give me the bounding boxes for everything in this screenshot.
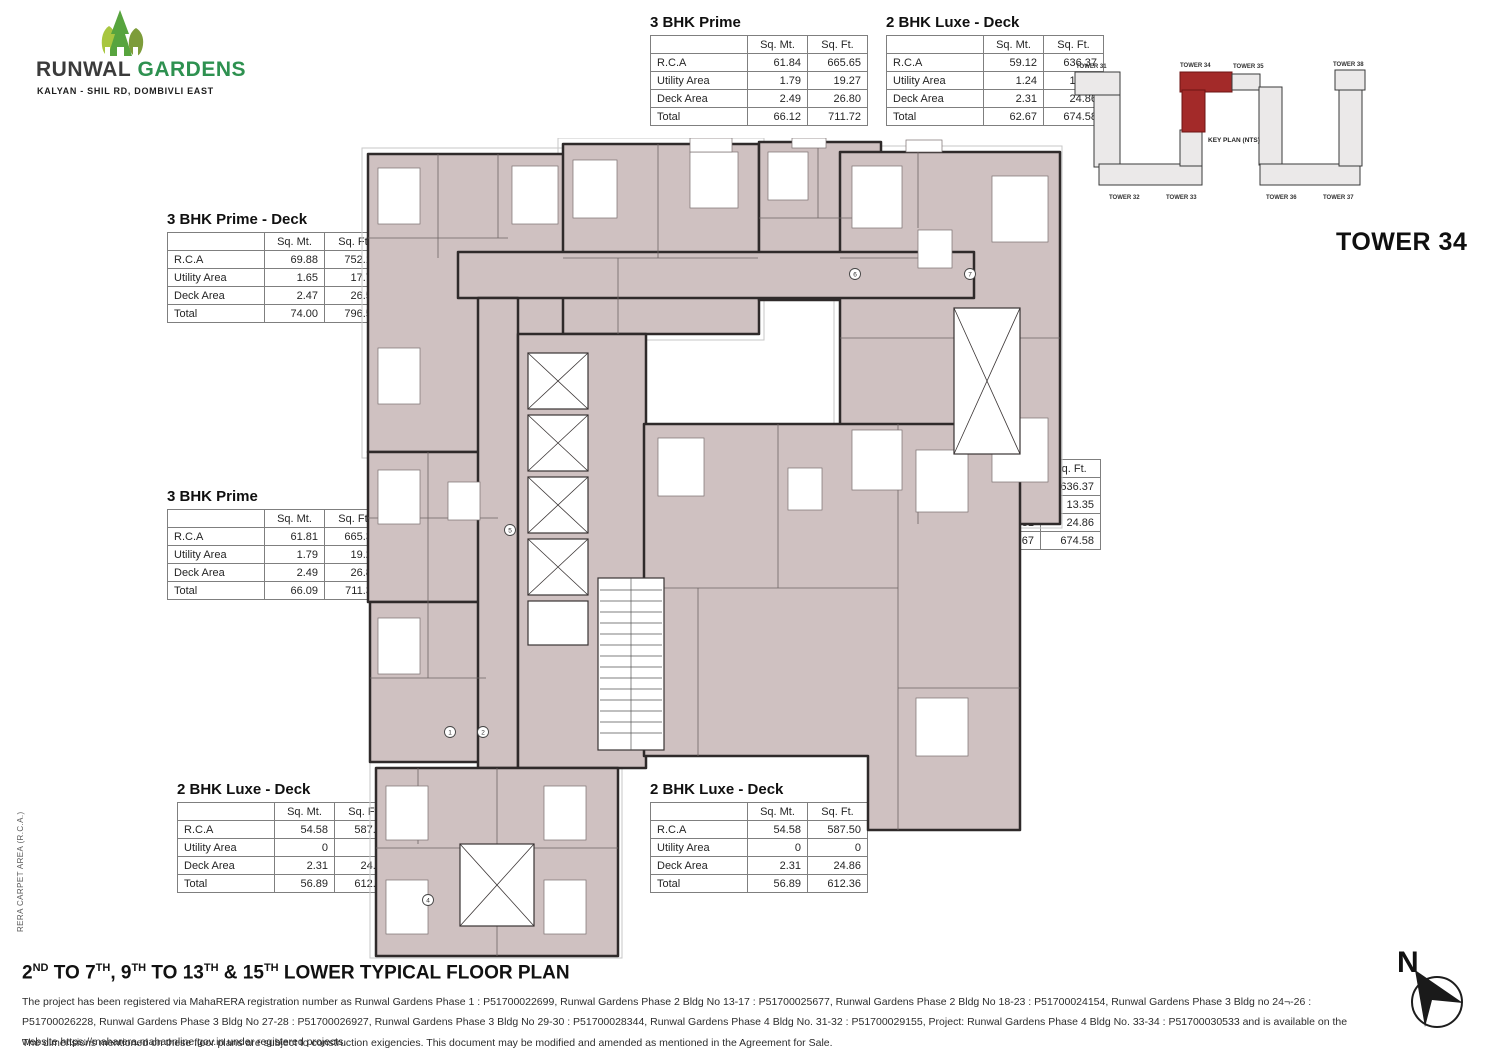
- area-table-title: 3 BHK Prime: [167, 488, 385, 505]
- table-row: R.C.A69.88752.19: [168, 251, 385, 269]
- svg-text:4: 4: [426, 897, 430, 904]
- table-row: Total66.09711.39: [168, 582, 385, 600]
- area-label-cell: Utility Area: [168, 546, 265, 564]
- service-shaft-right: [954, 308, 1020, 454]
- lift-shafts: [528, 353, 588, 645]
- area-value-cell: 69.88: [265, 251, 325, 269]
- area-value-cell: 66.12: [748, 108, 808, 126]
- svg-text:2: 2: [481, 729, 485, 736]
- area-table-title: 3 BHK Prime - Deck: [167, 211, 385, 228]
- brand-tagline: KALYAN - SHIL RD, DOMBIVLI EAST: [37, 86, 214, 96]
- table-row: R.C.A61.81665.32: [168, 528, 385, 546]
- corner-cell: [887, 36, 984, 54]
- col-header: Sq. Mt.: [265, 510, 325, 528]
- col-header: Sq. Ft.: [1044, 36, 1104, 54]
- area-value-cell: 1.65: [265, 269, 325, 287]
- area-value-cell: 26.80: [808, 90, 868, 108]
- col-header: Sq. Mt.: [748, 36, 808, 54]
- area-label-cell: R.C.A: [168, 251, 265, 269]
- corner-cell: [178, 803, 275, 821]
- area-value-cell: 2.31: [275, 857, 335, 875]
- svg-text:7: 7: [968, 271, 972, 278]
- svg-text:6: 6: [853, 271, 857, 278]
- tower-title: TOWER 34: [1336, 228, 1467, 257]
- area-label-cell: Utility Area: [651, 72, 748, 90]
- area-label-cell: Total: [178, 875, 275, 893]
- table-row: Deck Area2.4926.80: [651, 90, 868, 108]
- area-table-3bhk-prime-left: 3 BHK Prime Sq. Mt.Sq. Ft.R.C.A61.81665.…: [167, 488, 385, 600]
- area-value-cell: 2.31: [984, 90, 1044, 108]
- floor-plan-sheet: RUNWAL GARDENS KALYAN - SHIL RD, DOMBIVL…: [0, 0, 1500, 1061]
- area-label-cell: Deck Area: [168, 564, 265, 582]
- passage-horizontal: [458, 252, 974, 298]
- area-table: Sq. Mt.Sq. Ft.R.C.A69.88752.19Utility Ar…: [167, 232, 385, 323]
- table-row: R.C.A61.84665.65: [651, 54, 868, 72]
- corner-cell: [168, 510, 265, 528]
- staircase: [598, 578, 664, 750]
- area-table-title: 3 BHK Prime: [650, 14, 868, 31]
- table-row: Utility Area1.7919.27: [651, 72, 868, 90]
- area-label-cell: Utility Area: [168, 269, 265, 287]
- col-header: Sq. Mt.: [265, 233, 325, 251]
- table-row: Total66.12711.72: [651, 108, 868, 126]
- key-plan-tower-label: TOWER 36: [1266, 195, 1297, 201]
- area-value-cell: 711.72: [808, 108, 868, 126]
- table-row: Deck Area2.4926.80: [168, 564, 385, 582]
- table-row: Total74.00796.54: [168, 305, 385, 323]
- key-plan-tower-label: TOWER 38: [1333, 62, 1364, 68]
- area-value-cell: 665.65: [808, 54, 868, 72]
- corner-cell: [651, 36, 748, 54]
- key-plan-tower-label: TOWER 33: [1166, 195, 1197, 201]
- key-plan-highlight-tower-34: [1180, 72, 1232, 132]
- sheet-title: 2ND TO 7TH, 9TH TO 13TH & 15TH LOWER TYP…: [22, 962, 570, 984]
- area-value-cell: 62.67: [984, 108, 1044, 126]
- svg-text:5: 5: [508, 527, 512, 534]
- key-plan-tower-label: TOWER 32: [1109, 195, 1140, 201]
- key-plan-title: KEY PLAN (NTS): [1208, 137, 1260, 144]
- area-table-3bhk-prime-top: 3 BHK Prime Sq. Mt.Sq. Ft.R.C.A61.84665.…: [650, 14, 868, 126]
- area-table-3bhk-prime-deck: 3 BHK Prime - Deck Sq. Mt.Sq. Ft.R.C.A69…: [167, 211, 385, 323]
- area-label-cell: Deck Area: [887, 90, 984, 108]
- key-plan: TOWER 31 TOWER 34 TOWER 35 TOWER 38 TOWE…: [1062, 52, 1442, 212]
- area-value-cell: 2.47: [265, 287, 325, 305]
- area-value-cell: 0: [275, 839, 335, 857]
- area-value-cell: 2.49: [748, 90, 808, 108]
- area-value-cell: 61.81: [265, 528, 325, 546]
- corner-cell: [168, 233, 265, 251]
- area-label-cell: Deck Area: [651, 90, 748, 108]
- key-plan-tower-label: TOWER 31: [1076, 64, 1107, 70]
- area-value-cell: 66.09: [265, 582, 325, 600]
- area-value-cell: 19.27: [808, 72, 868, 90]
- area-value-cell: 2.49: [265, 564, 325, 582]
- area-table: Sq. Mt.Sq. Ft.R.C.A61.81665.32Utility Ar…: [167, 509, 385, 600]
- logo-trees-icon: [92, 10, 148, 62]
- north-arrow-icon: N: [1385, 938, 1495, 1053]
- area-label-cell: Total: [887, 108, 984, 126]
- col-header: Sq. Ft.: [808, 36, 868, 54]
- area-table-title: 2 BHK Luxe - Deck: [886, 14, 1104, 31]
- area-value-cell: 56.89: [275, 875, 335, 893]
- table-row: Utility Area1.6517.76: [168, 269, 385, 287]
- area-label-cell: R.C.A: [168, 528, 265, 546]
- floor-plan-drawing: 675124: [358, 138, 1063, 960]
- north-label: N: [1397, 946, 1419, 979]
- area-label-cell: Total: [168, 305, 265, 323]
- area-label-cell: Total: [651, 108, 748, 126]
- table-row: Deck Area2.4726.59: [168, 287, 385, 305]
- col-header: Sq. Mt.: [275, 803, 335, 821]
- brand-name: RUNWAL GARDENS: [36, 58, 246, 82]
- area-value-cell: 59.12: [984, 54, 1044, 72]
- area-table: Sq. Mt.Sq. Ft.R.C.A61.84665.65Utility Ar…: [650, 35, 868, 126]
- area-label-cell: R.C.A: [178, 821, 275, 839]
- area-value-cell: 54.58: [275, 821, 335, 839]
- area-label-cell: Utility Area: [887, 72, 984, 90]
- area-value-cell: 74.00: [265, 305, 325, 323]
- col-header: Sq. Mt.: [984, 36, 1044, 54]
- area-value-cell: 1.79: [265, 546, 325, 564]
- area-label-cell: Utility Area: [178, 839, 275, 857]
- key-plan-tower-label: TOWER 34: [1180, 63, 1211, 69]
- service-shaft-bottom: [460, 844, 534, 926]
- area-value-cell: 1.79: [748, 72, 808, 90]
- area-label-cell: Deck Area: [178, 857, 275, 875]
- brand-secondary: GARDENS: [138, 58, 247, 81]
- key-plan-tower-label: TOWER 35: [1233, 64, 1264, 70]
- disclaimer-text: The dimensions mentioned on these floor …: [22, 1033, 1374, 1053]
- area-label-cell: Deck Area: [168, 287, 265, 305]
- table-row: Utility Area1.7919.27: [168, 546, 385, 564]
- key-plan-tower-label: TOWER 37: [1323, 195, 1354, 201]
- area-value-cell: 1.24: [984, 72, 1044, 90]
- area-value-cell: 61.84: [748, 54, 808, 72]
- area-label-cell: R.C.A: [887, 54, 984, 72]
- brand-primary: RUNWAL: [36, 58, 131, 81]
- rera-carpet-area-note: RERA CARPET AREA (R.C.A.): [16, 811, 25, 932]
- svg-text:1: 1: [448, 729, 452, 736]
- area-label-cell: Total: [168, 582, 265, 600]
- area-label-cell: R.C.A: [651, 54, 748, 72]
